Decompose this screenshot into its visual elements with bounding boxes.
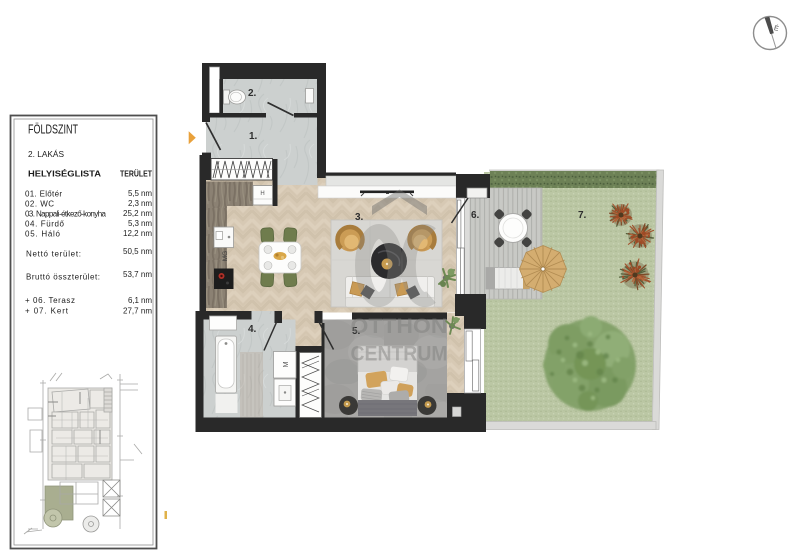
svg-text:12,2 nm: 12,2 nm xyxy=(123,229,152,238)
svg-text:OTTHON: OTTHON xyxy=(351,314,448,338)
svg-text:27,7 nm: 27,7 nm xyxy=(123,307,152,316)
svg-text:4.: 4. xyxy=(248,324,257,335)
svg-text:FÖLDSZINT: FÖLDSZINT xyxy=(28,123,78,137)
svg-text:M: M xyxy=(283,361,290,367)
svg-text:50,5 nm: 50,5 nm xyxy=(123,247,152,256)
svg-text:2. LAKÁS: 2. LAKÁS xyxy=(28,150,64,159)
svg-text:+ 06. Terasz: + 06. Terasz xyxy=(25,296,75,305)
svg-text:TERÜLET: TERÜLET xyxy=(120,169,153,179)
svg-text:53,7 nm: 53,7 nm xyxy=(123,270,152,279)
svg-text:1.: 1. xyxy=(249,131,258,142)
svg-text:MG: MG xyxy=(222,251,229,261)
svg-text:É: É xyxy=(773,23,780,33)
svg-text:6,1 nm: 6,1 nm xyxy=(128,296,152,305)
svg-text:5,5 nm: 5,5 nm xyxy=(128,189,152,198)
svg-text:05. Háló: 05. Háló xyxy=(25,230,61,239)
svg-text:3.: 3. xyxy=(355,212,364,223)
svg-text:Nettó terület:: Nettó terület: xyxy=(26,250,81,259)
svg-text:25,2 nm: 25,2 nm xyxy=(123,209,152,218)
svg-text:+ 07. Kert: + 07. Kert xyxy=(25,307,69,316)
svg-text:6.: 6. xyxy=(471,210,480,221)
svg-text:H: H xyxy=(260,191,264,197)
svg-text:HELYISÉGLISTA: HELYISÉGLISTA xyxy=(28,169,101,179)
svg-text:02. WC: 02. WC xyxy=(25,200,54,209)
svg-text:03. Nappali-étkező-konyha: 03. Nappali-étkező-konyha xyxy=(25,210,107,219)
svg-text:Bruttó összterület:: Bruttó összterület: xyxy=(26,273,100,282)
svg-text:2.: 2. xyxy=(248,88,257,99)
svg-text:01. Előtér: 01. Előtér xyxy=(25,190,62,199)
svg-text:04. Fürdő: 04. Fürdő xyxy=(25,220,65,229)
svg-text:2,3 nm: 2,3 nm xyxy=(128,199,152,208)
svg-text:CENTRUM: CENTRUM xyxy=(351,342,448,366)
svg-text:7.: 7. xyxy=(578,210,587,221)
svg-text:5,3 nm: 5,3 nm xyxy=(128,219,152,228)
